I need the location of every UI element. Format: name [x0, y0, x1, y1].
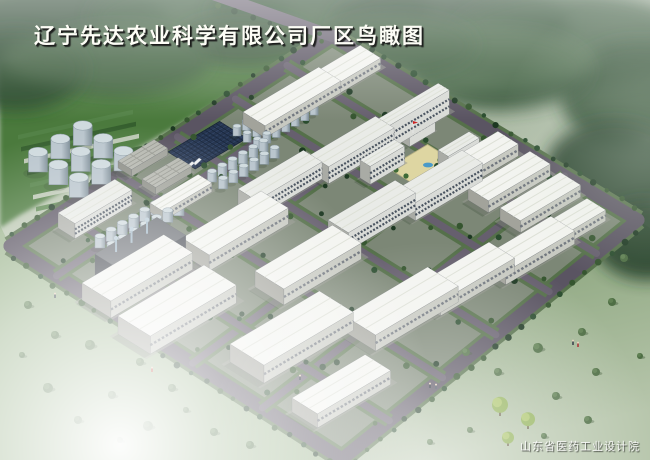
screenshot-root: 辽宁先达农业科学有限公司厂区鸟瞰图 山东省医药工业设计院	[0, 0, 650, 460]
layer-mist	[0, 0, 650, 460]
aerial-rendering-canvas	[0, 0, 650, 460]
designer-watermark: 山东省医药工业设计院	[520, 438, 640, 454]
image-title: 辽宁先达农业科学有限公司厂区鸟瞰图	[34, 20, 425, 50]
